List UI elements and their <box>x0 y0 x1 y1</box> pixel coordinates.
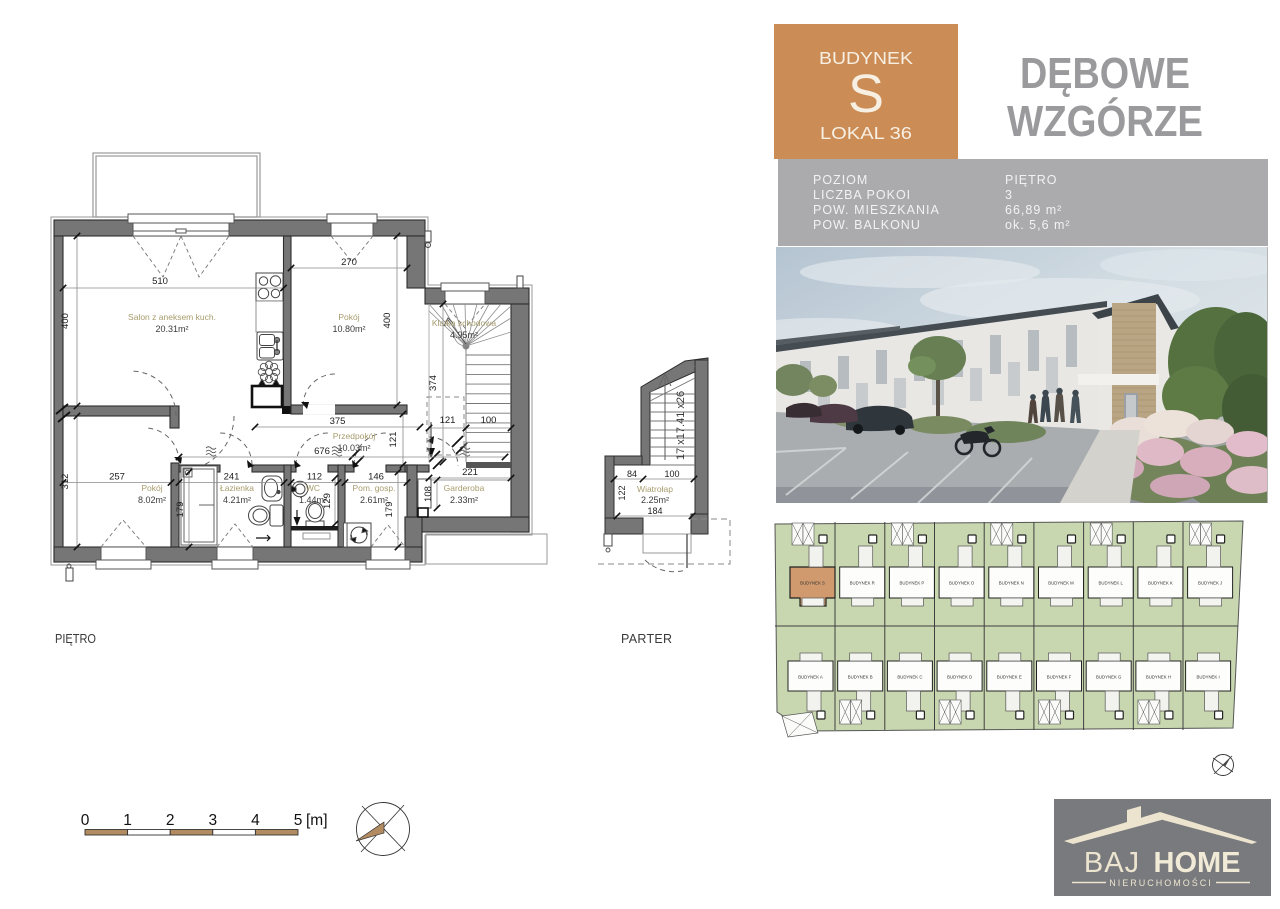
svg-text:Pokój: Pokój <box>338 312 359 322</box>
svg-text:Klatka schodowa: Klatka schodowa <box>432 318 497 328</box>
svg-text:[m]: [m] <box>306 812 328 829</box>
svg-text:Wiatrołap: Wiatrołap <box>637 484 673 494</box>
svg-text:66,89 m²: 66,89 m² <box>1005 203 1062 217</box>
svg-text:BUDYNEK D: BUDYNEK D <box>947 675 972 680</box>
svg-text:270: 270 <box>341 257 357 268</box>
svg-text:179: 179 <box>384 502 395 518</box>
svg-text:Pokój: Pokój <box>141 483 162 493</box>
svg-text:PARTER: PARTER <box>621 632 672 646</box>
svg-text:4.21m²: 4.21m² <box>223 495 251 505</box>
svg-text:LOKAL 36: LOKAL 36 <box>820 123 912 143</box>
svg-text:241: 241 <box>224 472 240 483</box>
svg-text:8.02m²: 8.02m² <box>138 495 166 505</box>
svg-text:BAJ: BAJ <box>1084 847 1140 879</box>
svg-text:POZIOM: POZIOM <box>813 173 868 187</box>
svg-text:374: 374 <box>428 375 439 391</box>
svg-text:S: S <box>848 64 884 124</box>
svg-text:Pom. gosp.: Pom. gosp. <box>353 483 396 493</box>
svg-text:257: 257 <box>109 472 125 483</box>
svg-text:BUDYNEK H: BUDYNEK H <box>1146 675 1171 680</box>
svg-text:4: 4 <box>251 812 260 829</box>
svg-text:ok. 5,6 m²: ok. 5,6 m² <box>1005 218 1071 232</box>
svg-text:Przedpokój: Przedpokój <box>333 431 376 441</box>
svg-text:BUDYNEK L: BUDYNEK L <box>1099 581 1124 586</box>
svg-text:BUDYNEK I: BUDYNEK I <box>1197 675 1220 680</box>
svg-text:WZGÓRZE: WZGÓRZE <box>1007 96 1203 146</box>
svg-text:375: 375 <box>330 416 346 427</box>
svg-text:121: 121 <box>440 415 456 426</box>
svg-text:4.95m²: 4.95m² <box>450 330 478 340</box>
svg-text:312: 312 <box>60 474 71 490</box>
svg-text:BUDYNEK A: BUDYNEK A <box>798 675 823 680</box>
svg-text:1: 1 <box>123 812 132 829</box>
svg-text:108: 108 <box>423 486 434 502</box>
svg-text:10.03m²: 10.03m² <box>337 443 370 453</box>
svg-text:BUDYNEK N: BUDYNEK N <box>999 581 1024 586</box>
svg-text:84: 84 <box>627 469 637 479</box>
svg-text:0: 0 <box>81 812 90 829</box>
svg-text:400: 400 <box>382 313 393 329</box>
svg-text:129: 129 <box>322 493 333 509</box>
svg-text:PIĘTRO: PIĘTRO <box>1005 173 1058 187</box>
svg-text:BUDYNEK J: BUDYNEK J <box>1198 581 1222 586</box>
svg-text:146: 146 <box>368 472 384 483</box>
svg-text:121: 121 <box>388 432 399 448</box>
svg-text:221: 221 <box>462 467 478 478</box>
svg-text:112: 112 <box>307 472 322 483</box>
svg-text:10.80m²: 10.80m² <box>332 324 365 334</box>
svg-text:BUDYNEK F: BUDYNEK F <box>1047 675 1072 680</box>
svg-text:100: 100 <box>664 469 679 479</box>
svg-text:510: 510 <box>152 276 168 287</box>
svg-text:BUDYNEK E: BUDYNEK E <box>997 675 1022 680</box>
svg-text:400: 400 <box>60 313 71 329</box>
svg-text:BUDYNEK G: BUDYNEK G <box>1096 675 1122 680</box>
svg-text:BUDYNEK S: BUDYNEK S <box>800 581 825 586</box>
svg-text:BUDYNEK O: BUDYNEK O <box>949 581 975 586</box>
svg-text:676: 676 <box>314 446 330 457</box>
svg-text:20.31m²: 20.31m² <box>155 324 188 334</box>
svg-text:3: 3 <box>208 812 217 829</box>
svg-text:PIĘTRO: PIĘTRO <box>55 632 96 646</box>
svg-text:BUDYNEK K: BUDYNEK K <box>1148 581 1173 586</box>
svg-text:DĘBOWE: DĘBOWE <box>1020 49 1190 98</box>
svg-text:POW. BALKONU: POW. BALKONU <box>813 218 921 232</box>
svg-text:2.33m²: 2.33m² <box>450 495 478 505</box>
svg-text:NIERUCHOMOŚCI: NIERUCHOMOŚCI <box>1109 877 1213 888</box>
svg-text:3: 3 <box>1005 188 1013 202</box>
svg-text:LICZBA POKOI: LICZBA POKOI <box>813 188 911 202</box>
svg-text:Garderoba: Garderoba <box>444 483 485 493</box>
svg-text:17 x17.41 x26: 17 x17.41 x26 <box>675 391 687 460</box>
svg-text:179: 179 <box>175 502 186 518</box>
svg-text:5: 5 <box>294 812 303 829</box>
svg-text:WC: WC <box>306 483 320 493</box>
svg-text:POW. MIESZKANIA: POW. MIESZKANIA <box>813 203 940 217</box>
svg-text:Salon z aneksem kuch.: Salon z aneksem kuch. <box>128 312 216 322</box>
svg-text:122: 122 <box>617 485 627 500</box>
svg-text:184: 184 <box>647 506 662 516</box>
svg-text:2.25m²: 2.25m² <box>641 495 669 505</box>
svg-text:100: 100 <box>481 415 497 426</box>
svg-text:2: 2 <box>166 812 175 829</box>
svg-text:Łazienka: Łazienka <box>220 483 254 493</box>
svg-text:BUDYNEK R: BUDYNEK R <box>850 581 875 586</box>
svg-text:BUDYNEK M: BUDYNEK M <box>1048 581 1074 586</box>
svg-text:BUDYNEK B: BUDYNEK B <box>848 675 873 680</box>
svg-text:HOME: HOME <box>1154 847 1241 879</box>
svg-text:BUDYNEK P: BUDYNEK P <box>899 581 924 586</box>
svg-text:BUDYNEK C: BUDYNEK C <box>897 675 922 680</box>
